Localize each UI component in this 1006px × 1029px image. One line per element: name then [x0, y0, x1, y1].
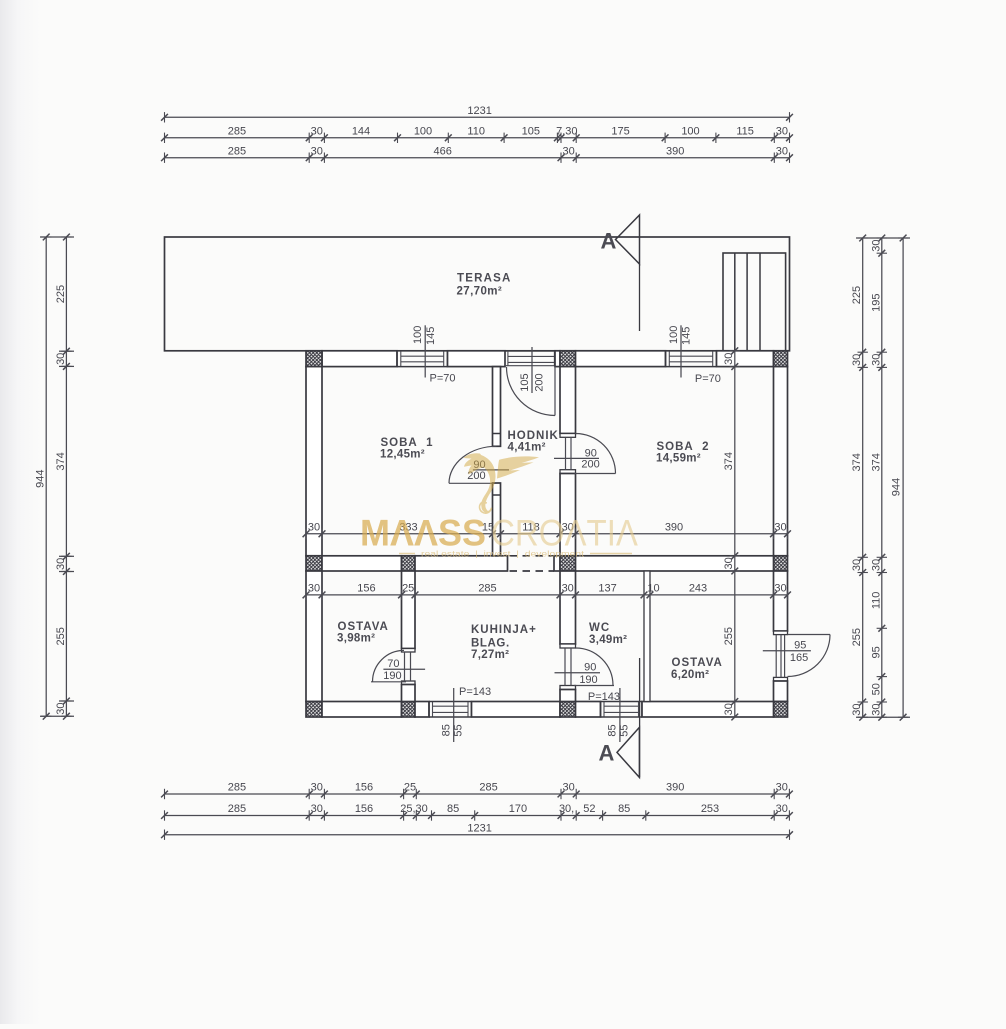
svg-text:195: 195 [870, 294, 882, 312]
svg-text:10: 10 [647, 583, 659, 595]
svg-text:255: 255 [723, 627, 735, 645]
svg-text:190: 190 [383, 670, 401, 682]
svg-text:30: 30 [311, 145, 323, 157]
svg-text:30: 30 [55, 353, 67, 365]
svg-text:285: 285 [228, 803, 246, 815]
svg-text:30: 30 [774, 583, 786, 595]
svg-text:CROΛTIΛ: CROΛTIΛ [491, 512, 638, 554]
svg-text:95: 95 [794, 640, 806, 652]
svg-text:3,49m²: 3,49m² [589, 634, 627, 646]
svg-text:110: 110 [870, 592, 882, 610]
svg-text:30: 30 [55, 702, 67, 714]
svg-text:30: 30 [723, 353, 735, 365]
svg-text:12,45m²: 12,45m² [380, 449, 425, 461]
svg-text:30: 30 [308, 521, 320, 533]
svg-text:7,27m²: 7,27m² [471, 649, 509, 661]
svg-text:1231: 1231 [467, 822, 491, 834]
svg-text:55: 55 [453, 724, 465, 736]
svg-text:SOBA 2: SOBA 2 [657, 441, 710, 453]
svg-text:374: 374 [55, 452, 67, 470]
svg-text:30: 30 [311, 125, 323, 137]
svg-text:225: 225 [55, 285, 67, 303]
svg-text:WC: WC [589, 622, 610, 634]
svg-text:30: 30 [870, 559, 882, 571]
svg-text:466: 466 [434, 145, 452, 157]
svg-text:30: 30 [774, 521, 786, 533]
svg-text:50: 50 [870, 683, 882, 695]
svg-text:285: 285 [228, 782, 246, 794]
svg-text:30: 30 [776, 803, 788, 815]
svg-text:30: 30 [562, 782, 574, 794]
svg-text:HODNIK: HODNIK [508, 430, 559, 442]
svg-text:A: A [599, 741, 615, 766]
svg-text:100: 100 [681, 125, 699, 137]
svg-text:255: 255 [55, 627, 67, 645]
svg-text:14,59m²: 14,59m² [656, 453, 701, 465]
svg-text:390: 390 [666, 782, 684, 794]
svg-text:30: 30 [723, 557, 735, 569]
svg-text:285: 285 [228, 145, 246, 157]
svg-text:85: 85 [441, 724, 453, 736]
svg-text:253: 253 [701, 803, 719, 815]
svg-text:156: 156 [357, 583, 375, 595]
svg-text:225: 225 [851, 286, 863, 304]
svg-text:30: 30 [870, 239, 882, 251]
svg-text:30: 30 [870, 703, 882, 715]
svg-text:374: 374 [723, 452, 735, 470]
svg-text:55: 55 [618, 724, 630, 736]
svg-text:30: 30 [776, 782, 788, 794]
svg-text:BLAG.: BLAG. [471, 637, 510, 649]
svg-text:30: 30 [870, 354, 882, 366]
svg-text:85: 85 [447, 803, 459, 815]
svg-text:145: 145 [681, 327, 693, 345]
svg-text:390: 390 [665, 521, 683, 533]
svg-text:6,20m²: 6,20m² [671, 669, 709, 681]
svg-text:30: 30 [308, 583, 320, 595]
svg-text:P=143: P=143 [459, 686, 491, 698]
svg-text:4,41m²: 4,41m² [508, 442, 546, 454]
svg-text:P=143: P=143 [588, 691, 620, 703]
svg-text:110: 110 [467, 125, 485, 137]
svg-text:285: 285 [228, 125, 246, 137]
svg-text:156: 156 [355, 803, 373, 815]
svg-text:137: 137 [598, 583, 616, 595]
svg-text:30: 30 [776, 125, 788, 137]
svg-text:30: 30 [851, 559, 863, 571]
svg-text:30: 30 [562, 145, 574, 157]
svg-text:27,70m²: 27,70m² [457, 286, 503, 298]
svg-text:90: 90 [584, 661, 596, 673]
svg-text:100: 100 [414, 125, 432, 137]
svg-text:156: 156 [355, 782, 373, 794]
svg-text:7,30: 7,30 [556, 125, 577, 137]
svg-text:165: 165 [790, 652, 808, 664]
svg-text:30: 30 [851, 354, 863, 366]
svg-text:30: 30 [723, 703, 735, 715]
svg-text:70: 70 [387, 658, 399, 670]
svg-text:200: 200 [533, 373, 545, 391]
svg-text:105: 105 [519, 373, 531, 391]
svg-text:30: 30 [55, 558, 67, 570]
svg-text:30: 30 [311, 803, 323, 815]
svg-text:285: 285 [478, 583, 496, 595]
svg-text:243: 243 [689, 583, 707, 595]
svg-text:944: 944 [891, 478, 903, 496]
svg-text:KUHINJA+: KUHINJA+ [471, 624, 537, 636]
svg-text:30: 30 [311, 782, 323, 794]
svg-text:25: 25 [402, 583, 414, 595]
svg-text:200: 200 [581, 459, 599, 471]
svg-text:OSTAVA: OSTAVA [672, 657, 723, 669]
svg-text:374: 374 [870, 453, 882, 471]
svg-text:1231: 1231 [467, 105, 491, 117]
svg-text:52: 52 [583, 803, 595, 815]
svg-text:TERASA: TERASA [457, 273, 511, 285]
svg-text:SOBA 1: SOBA 1 [381, 437, 434, 449]
svg-text:3,98m²: 3,98m² [337, 632, 375, 644]
svg-text:30: 30 [562, 583, 574, 595]
svg-text:105: 105 [522, 125, 540, 137]
svg-text:285: 285 [479, 782, 497, 794]
svg-text:85: 85 [618, 803, 630, 815]
svg-text:374: 374 [851, 453, 863, 471]
svg-text:30: 30 [776, 145, 788, 157]
svg-text:115: 115 [736, 125, 754, 137]
svg-text:144: 144 [352, 125, 370, 137]
svg-text:390: 390 [666, 145, 684, 157]
svg-text:95: 95 [870, 646, 882, 658]
svg-text:190: 190 [579, 674, 597, 686]
svg-text:MΛΛSS: MΛΛSS [360, 512, 486, 554]
svg-text:30: 30 [851, 703, 863, 715]
svg-text:175: 175 [611, 125, 629, 137]
svg-text:100: 100 [668, 326, 680, 344]
svg-text:real estate | invest | dev: real estate | invest | development [421, 550, 585, 559]
svg-text:100: 100 [412, 326, 424, 344]
svg-text:P=70: P=70 [695, 373, 721, 385]
svg-text:145: 145 [425, 327, 437, 345]
svg-text:P=70: P=70 [430, 373, 456, 385]
svg-text:255: 255 [851, 628, 863, 646]
svg-text:85: 85 [606, 724, 618, 736]
svg-text:170: 170 [509, 803, 527, 815]
svg-text:30,: 30, [559, 803, 574, 815]
svg-text:944: 944 [35, 470, 47, 488]
svg-text:25: 25 [404, 782, 416, 794]
svg-text:25,30: 25,30 [400, 803, 428, 815]
svg-text:A: A [601, 229, 617, 254]
